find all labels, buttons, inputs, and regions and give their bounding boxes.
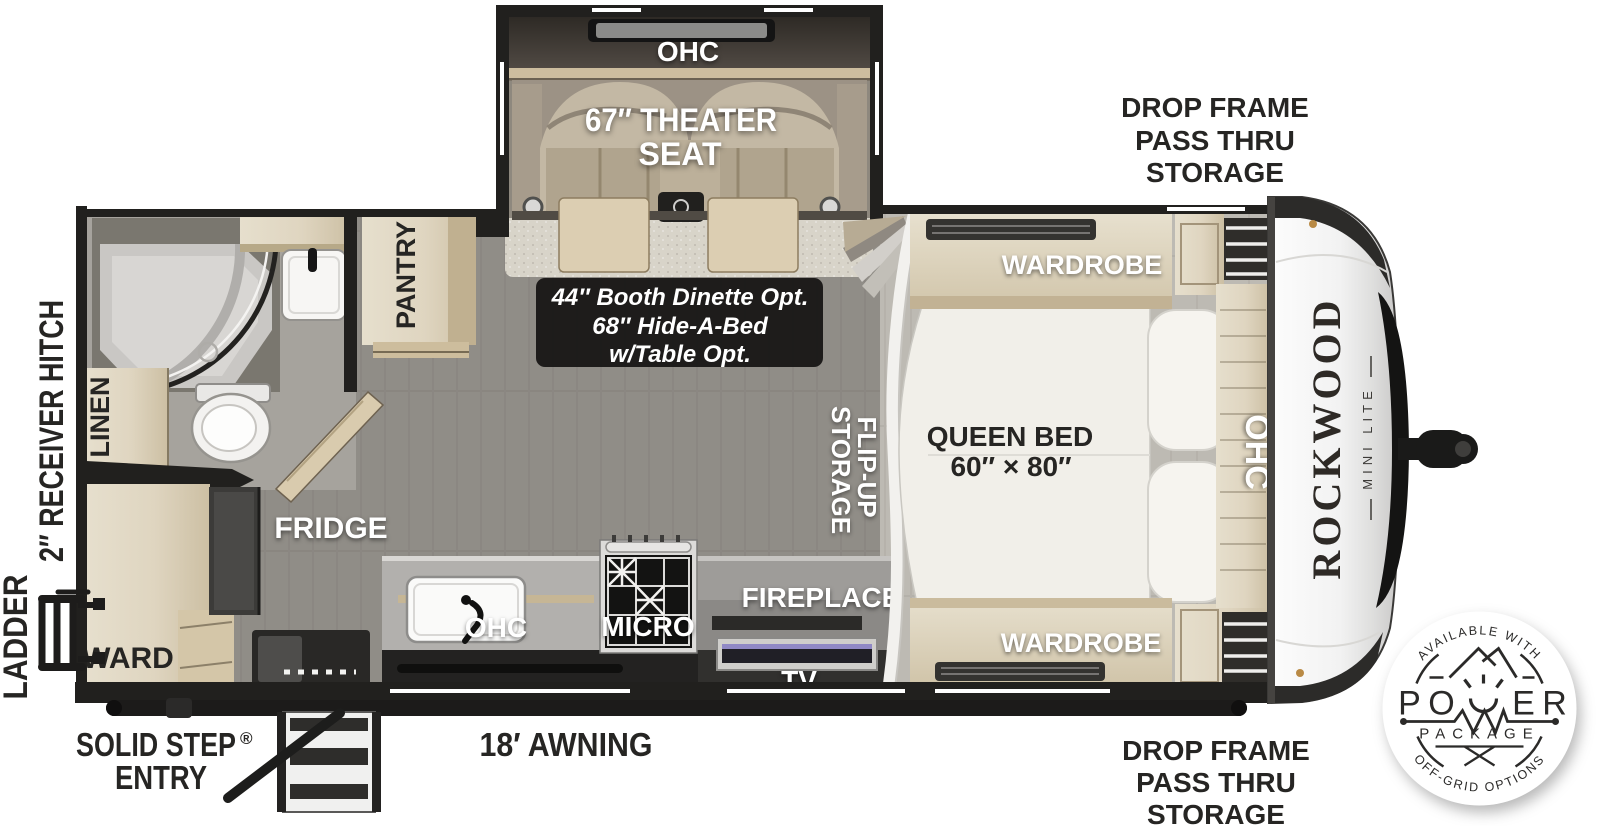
- svg-text:FIREPLACE: FIREPLACE: [742, 582, 901, 613]
- svg-text:LADDER: LADDER: [0, 575, 35, 700]
- svg-text:WARDROBE: WARDROBE: [1002, 250, 1163, 280]
- svg-text:DROP FRAME: DROP FRAME: [1122, 735, 1310, 766]
- svg-text:STORAGE: STORAGE: [1146, 157, 1284, 188]
- svg-text:ROCKWOOD: ROCKWOOD: [1304, 296, 1349, 579]
- svg-text:44″ Booth Dinette Opt.: 44″ Booth Dinette Opt.: [551, 284, 809, 311]
- svg-text:®: ®: [240, 729, 253, 748]
- svg-text:MICRO: MICRO: [601, 611, 694, 642]
- svg-text:STORAGE: STORAGE: [1147, 799, 1285, 826]
- svg-text:60″ × 80″: 60″ × 80″: [950, 451, 1071, 482]
- svg-text:QUEEN BED: QUEEN BED: [927, 421, 1093, 452]
- svg-text:OHC: OHC: [465, 612, 527, 643]
- svg-text:PASS THRU: PASS THRU: [1136, 767, 1296, 798]
- svg-text:SEAT: SEAT: [639, 136, 722, 172]
- svg-text:R: R: [1542, 685, 1567, 723]
- svg-text:MINI LITE: MINI LITE: [1360, 386, 1375, 490]
- svg-text:DROP FRAME: DROP FRAME: [1121, 92, 1309, 123]
- svg-text:SOLID STEP: SOLID STEP: [76, 726, 236, 763]
- svg-text:w/Table Opt.: w/Table Opt.: [609, 341, 751, 368]
- svg-text:O: O: [1428, 685, 1454, 723]
- svg-text:STORAGE: STORAGE: [826, 406, 856, 534]
- svg-text:WARDROBE: WARDROBE: [1001, 628, 1162, 658]
- svg-text:18′ AWNING: 18′ AWNING: [480, 726, 653, 763]
- svg-text:ENTRY: ENTRY: [115, 759, 207, 796]
- svg-text:FRIDGE: FRIDGE: [274, 512, 387, 545]
- svg-text:OHC: OHC: [657, 36, 719, 67]
- svg-text:E: E: [1512, 685, 1535, 723]
- svg-text:2″ RECEIVER HITCH: 2″ RECEIVER HITCH: [33, 300, 71, 562]
- svg-text:67″ THEATER: 67″ THEATER: [585, 102, 777, 138]
- svg-text:LINEN: LINEN: [85, 377, 115, 458]
- svg-text:68″ Hide-A-Bed: 68″ Hide-A-Bed: [592, 313, 769, 340]
- svg-text:PANTRY: PANTRY: [391, 221, 421, 329]
- svg-text:PASS THRU: PASS THRU: [1135, 125, 1295, 156]
- svg-text:PACKAGE: PACKAGE: [1419, 726, 1539, 743]
- svg-text:P: P: [1398, 685, 1421, 723]
